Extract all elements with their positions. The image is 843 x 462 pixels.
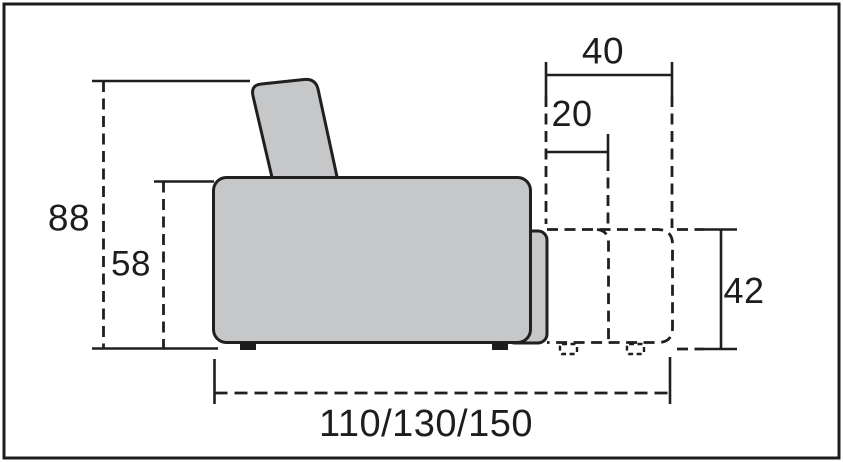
extension-castor-right xyxy=(627,344,644,354)
dim-label-overhang-depth: 20 xyxy=(551,96,592,132)
dim-label-total-height: 88 xyxy=(48,200,90,237)
extension-castor-left xyxy=(560,344,577,354)
dim-label-extension-height: 42 xyxy=(723,273,764,309)
dimension-diagram: 88 58 40 20 42 110/130/150 xyxy=(0,0,843,462)
sofa-backrest xyxy=(253,79,339,186)
diagram-canvas xyxy=(0,0,843,462)
sofa-foot-left xyxy=(240,342,256,350)
extension-divider-dashed xyxy=(597,230,609,343)
dim-label-seat-arm-height: 58 xyxy=(111,247,151,282)
dim-label-width-variants: 110/130/150 xyxy=(319,405,533,443)
dim-label-backrest-top-depth: 40 xyxy=(582,33,624,70)
sofa-body xyxy=(214,178,531,343)
sofa-foot-right xyxy=(492,342,508,350)
